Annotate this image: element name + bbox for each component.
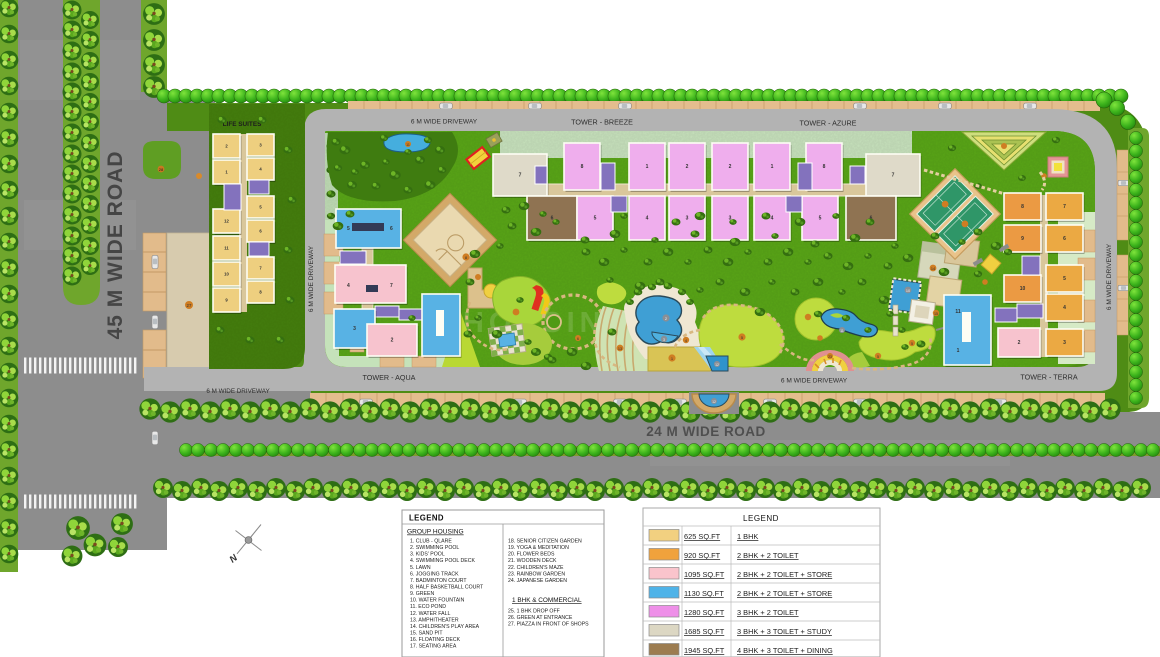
svg-text:5: 5 — [347, 226, 350, 232]
svg-text:7: 7 — [1063, 204, 1066, 210]
svg-text:6 M WIDE DRIVEWAY: 6 M WIDE DRIVEWAY — [781, 378, 848, 385]
svg-text:11: 11 — [406, 143, 410, 147]
svg-text:22. CHILDREN'S MAZE: 22. CHILDREN'S MAZE — [508, 565, 564, 571]
svg-text:1095 SQ.FT: 1095 SQ.FT — [684, 570, 725, 579]
svg-text:3: 3 — [1063, 340, 1066, 346]
svg-text:21. WOODEN DECK: 21. WOODEN DECK — [508, 558, 557, 564]
svg-text:1280 SQ.FT: 1280 SQ.FT — [684, 608, 725, 617]
svg-text:3 BHK + 3 TOILET + STUDY: 3 BHK + 3 TOILET + STUDY — [737, 627, 832, 636]
svg-text:2: 2 — [391, 338, 394, 344]
svg-text:6 M WIDE DRIVEWAY: 6 M WIDE DRIVEWAY — [206, 388, 270, 395]
svg-text:5: 5 — [594, 216, 597, 222]
svg-text:11: 11 — [955, 309, 961, 315]
svg-text:5. LAWN: 5. LAWN — [410, 565, 431, 571]
svg-text:2: 2 — [686, 164, 689, 170]
svg-text:4 BHK + 3 TOILET + DINING: 4 BHK + 3 TOILET + DINING — [737, 646, 833, 655]
svg-text:625 SQ.FT: 625 SQ.FT — [684, 532, 721, 541]
svg-text:16. FLOATING DECK: 16. FLOATING DECK — [410, 637, 461, 643]
svg-text:6 M WIDE DRIVEWAY: 6 M WIDE DRIVEWAY — [1106, 243, 1113, 310]
svg-text:24. JAPANESE GARDEN: 24. JAPANESE GARDEN — [508, 578, 567, 584]
svg-text:9: 9 — [1021, 236, 1024, 242]
svg-text:12: 12 — [224, 219, 229, 224]
svg-text:23: 23 — [828, 355, 832, 359]
svg-text:7: 7 — [390, 283, 393, 289]
svg-text:5: 5 — [911, 342, 913, 346]
svg-text:9. GREEN: 9. GREEN — [410, 591, 434, 597]
svg-text:11: 11 — [224, 246, 229, 251]
svg-text:15: 15 — [934, 312, 938, 316]
svg-text:8. HALF BASKETBALL COURT: 8. HALF BASKETBALL COURT — [410, 585, 484, 591]
svg-text:28: 28 — [159, 167, 164, 172]
svg-text:TOWER - BREEZE: TOWER - BREEZE — [571, 118, 633, 127]
svg-text:8: 8 — [581, 164, 584, 170]
svg-text:10: 10 — [1020, 286, 1026, 292]
svg-text:14. CHILDREN'S PLAY AREA: 14. CHILDREN'S PLAY AREA — [410, 624, 480, 630]
svg-text:7: 7 — [892, 173, 895, 179]
svg-text:6: 6 — [1063, 236, 1066, 242]
svg-text:TOWER - AQUA: TOWER - AQUA — [363, 373, 416, 382]
svg-text:10: 10 — [906, 289, 910, 293]
svg-text:1. CLUB - QLARE: 1. CLUB - QLARE — [410, 539, 452, 545]
svg-text:1130 SQ.FT: 1130 SQ.FT — [684, 589, 724, 598]
svg-text:2 BHK + 2 TOILET + STORE: 2 BHK + 2 TOILET + STORE — [737, 570, 832, 579]
svg-text:1685 SQ.FT: 1685 SQ.FT — [684, 627, 725, 636]
svg-text:2: 2 — [1018, 340, 1021, 346]
svg-text:24 M WIDE ROAD: 24 M WIDE ROAD — [646, 424, 766, 439]
svg-text:1: 1 — [646, 164, 649, 170]
svg-text:10. WATER FOUNTAIN: 10. WATER FOUNTAIN — [410, 598, 465, 604]
svg-text:14: 14 — [931, 267, 935, 271]
svg-text:11: 11 — [840, 329, 844, 333]
svg-text:8: 8 — [1021, 204, 1024, 210]
svg-text:45 M WIDE ROAD: 45 M WIDE ROAD — [104, 150, 127, 339]
svg-text:LIFE SUITES: LIFE SUITES — [223, 121, 262, 128]
svg-text:13: 13 — [618, 347, 622, 351]
svg-text:TOWER - AZURE: TOWER - AZURE — [800, 119, 857, 128]
svg-text:7. BADMINTON COURT: 7. BADMINTON COURT — [410, 578, 467, 584]
svg-text:GROUP HOUSING: GROUP HOUSING — [407, 529, 464, 536]
svg-text:18. SENIOR CITIZEN GARDEN: 18. SENIOR CITIZEN GARDEN — [508, 539, 582, 545]
svg-text:4: 4 — [646, 216, 649, 222]
svg-text:20. FLOWER BEDS: 20. FLOWER BEDS — [508, 552, 555, 558]
svg-text:3 BHK + 2 TOILET: 3 BHK + 2 TOILET — [737, 608, 799, 617]
svg-text:4: 4 — [685, 339, 687, 343]
svg-text:1 BHK & COMMERCIAL: 1 BHK & COMMERCIAL — [512, 597, 582, 604]
svg-text:2. SWIMMING POOL: 2. SWIMMING POOL — [410, 545, 459, 551]
svg-text:TOWER - TERRA: TOWER - TERRA — [1020, 373, 1077, 382]
svg-text:11. ECO POND: 11. ECO POND — [410, 604, 446, 610]
svg-text:17. SEATING AREA: 17. SEATING AREA — [410, 644, 457, 650]
svg-text:1: 1 — [957, 348, 960, 354]
svg-text:27: 27 — [187, 303, 192, 308]
svg-text:6: 6 — [577, 337, 579, 341]
svg-text:3: 3 — [663, 338, 665, 342]
svg-text:12: 12 — [715, 363, 719, 367]
svg-text:6: 6 — [390, 226, 393, 232]
svg-text:1945 SQ.FT: 1945 SQ.FT — [684, 646, 725, 655]
svg-text:920 SQ.FT: 920 SQ.FT — [684, 551, 721, 560]
svg-text:19. YOGA & MEDITATION: 19. YOGA & MEDITATION — [508, 545, 569, 551]
svg-text:2 BHK + 2 TOILET: 2 BHK + 2 TOILET — [737, 551, 799, 560]
svg-text:5: 5 — [877, 355, 879, 359]
svg-text:2 BHK + 2 TOILET + STORE: 2 BHK + 2 TOILET + STORE — [737, 589, 832, 598]
svg-text:8: 8 — [823, 164, 826, 170]
svg-text:4: 4 — [347, 283, 350, 289]
svg-text:LEGEND: LEGEND — [743, 514, 779, 523]
svg-text:1 BHK: 1 BHK — [737, 532, 758, 541]
svg-text:6 M WIDE DRIVEWAY: 6 M WIDE DRIVEWAY — [411, 119, 478, 126]
svg-text:1: 1 — [771, 164, 774, 170]
svg-text:3. KIDS' POOL: 3. KIDS' POOL — [410, 552, 445, 558]
svg-text:15. SAND PIT: 15. SAND PIT — [410, 631, 443, 637]
svg-text:5: 5 — [1063, 276, 1066, 282]
svg-text:3: 3 — [353, 326, 356, 332]
svg-text:2: 2 — [729, 164, 732, 170]
svg-text:6. JOGGING TRACK: 6. JOGGING TRACK — [410, 571, 459, 577]
svg-text:4: 4 — [771, 216, 774, 222]
svg-text:27. PIAZZA IN FRONT OF SHOPS: 27. PIAZZA IN FRONT OF SHOPS — [508, 622, 589, 628]
svg-text:26. GREEN AT ENTRANCE: 26. GREEN AT ENTRANCE — [508, 615, 573, 621]
svg-text:4. SWIMMING POOL DECK: 4. SWIMMING POOL DECK — [410, 558, 475, 564]
svg-text:12: 12 — [712, 400, 716, 404]
svg-text:3: 3 — [686, 216, 689, 222]
svg-text:23. RAINBOW GARDEN: 23. RAINBOW GARDEN — [508, 571, 565, 577]
svg-text:7: 7 — [519, 173, 522, 179]
svg-text:LEGEND: LEGEND — [409, 514, 444, 523]
svg-text:12. WATER FALL: 12. WATER FALL — [410, 611, 450, 617]
svg-text:5: 5 — [819, 216, 822, 222]
svg-text:6 M WIDE DRIVEWAY: 6 M WIDE DRIVEWAY — [308, 245, 315, 312]
svg-text:4: 4 — [1063, 305, 1066, 311]
svg-text:13. AMPHITHEATER: 13. AMPHITHEATER — [410, 617, 459, 623]
svg-text:25. 1 BHK DROP OFF: 25. 1 BHK DROP OFF — [508, 609, 560, 615]
svg-text:10: 10 — [224, 272, 229, 277]
